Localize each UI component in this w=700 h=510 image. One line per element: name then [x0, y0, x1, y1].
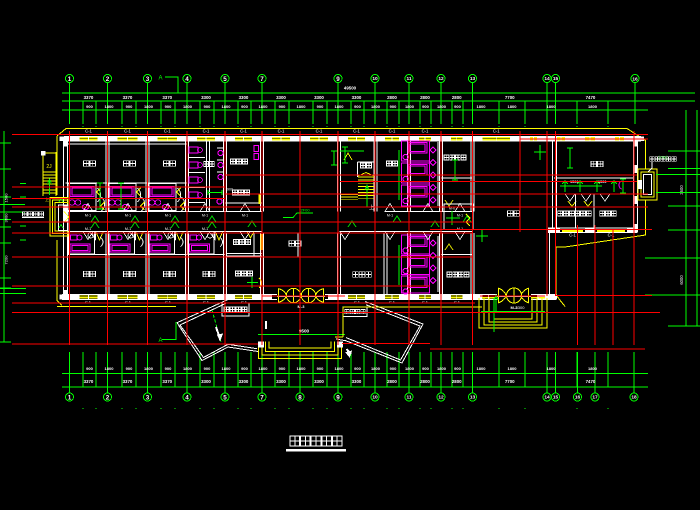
svg-text:900: 900: [422, 366, 429, 371]
svg-text:7470: 7470: [586, 379, 596, 384]
svg-text:900: 900: [317, 366, 324, 371]
svg-text:M-1: M-1: [165, 227, 171, 231]
svg-text:C-1: C-1: [422, 129, 429, 134]
svg-text:1800: 1800: [477, 366, 487, 371]
svg-text:9: 9: [336, 394, 340, 401]
svg-text:M-3: M-3: [298, 304, 306, 309]
svg-text:C-1: C-1: [569, 233, 576, 238]
svg-text:C-1: C-1: [493, 129, 500, 134]
svg-text:12: 12: [438, 395, 444, 401]
svg-text:900: 900: [241, 366, 248, 371]
svg-text:2: 2: [106, 394, 110, 401]
svg-text:2J: 2J: [46, 164, 52, 170]
svg-text:900: 900: [279, 104, 286, 109]
svg-text:M-1: M-1: [202, 214, 208, 218]
svg-text:4: 4: [185, 394, 189, 401]
svg-text:M-1: M-1: [202, 227, 208, 231]
svg-text:3300: 3300: [201, 95, 211, 100]
svg-text:1800: 1800: [144, 104, 154, 109]
svg-text:11: 11: [406, 76, 411, 82]
svg-text:C-1: C-1: [389, 129, 396, 134]
svg-text:900: 900: [317, 104, 324, 109]
svg-text:900: 900: [126, 104, 133, 109]
svg-text:C-1: C-1: [124, 129, 131, 134]
svg-text:M-1: M-1: [125, 227, 131, 231]
svg-text:1800: 1800: [259, 366, 269, 371]
svg-text:900: 900: [390, 366, 397, 371]
svg-text:900: 900: [86, 104, 93, 109]
svg-text:3370: 3370: [162, 95, 172, 100]
svg-text:C-1: C-1: [278, 129, 285, 134]
svg-text:14: 14: [544, 76, 550, 82]
svg-text:1800: 1800: [105, 104, 115, 109]
svg-text:900: 900: [165, 104, 172, 109]
svg-text:1800: 1800: [371, 366, 381, 371]
svg-text:1800: 1800: [183, 104, 193, 109]
svg-text:3300: 3300: [352, 379, 362, 384]
svg-text:900: 900: [227, 188, 233, 192]
svg-text:M-1: M-1: [457, 214, 463, 218]
svg-text:M-1: M-1: [387, 214, 393, 218]
svg-text:1800: 1800: [437, 104, 447, 109]
svg-text:3300: 3300: [239, 379, 249, 384]
svg-text:5: 5: [223, 76, 227, 83]
svg-text:1800: 1800: [508, 104, 518, 109]
svg-text:900: 900: [86, 366, 93, 371]
svg-text:1800: 1800: [588, 366, 598, 371]
svg-text:3600: 3600: [679, 185, 684, 195]
svg-text:900: 900: [204, 366, 211, 371]
svg-text:7: 7: [260, 394, 264, 401]
svg-text:A: A: [158, 338, 162, 344]
svg-text:900: 900: [279, 366, 286, 371]
svg-text:2800: 2800: [387, 95, 397, 100]
svg-text:M-1: M-1: [165, 214, 171, 218]
svg-text:C-1: C-1: [85, 129, 92, 134]
svg-text:1800: 1800: [547, 366, 557, 371]
svg-text:9: 9: [336, 76, 340, 83]
svg-text:2800: 2800: [420, 95, 430, 100]
svg-text:1800: 1800: [222, 104, 232, 109]
svg-text:900: 900: [354, 366, 361, 371]
svg-text:C-1: C-1: [203, 129, 210, 134]
svg-text:15: 15: [553, 76, 559, 82]
svg-text:C-1: C-1: [240, 129, 247, 134]
svg-text:12: 12: [438, 76, 444, 82]
svg-text:3300: 3300: [314, 379, 324, 384]
svg-text:7700: 7700: [505, 95, 515, 100]
svg-text:1800: 1800: [297, 104, 307, 109]
svg-text:2: 2: [106, 76, 110, 83]
svg-text:4: 4: [185, 76, 189, 83]
svg-text:3370: 3370: [123, 379, 133, 384]
svg-text:5: 5: [223, 394, 227, 401]
svg-text:11: 11: [406, 395, 411, 401]
svg-text:2800: 2800: [387, 379, 397, 384]
svg-text:900: 900: [422, 104, 429, 109]
svg-text:3600: 3600: [4, 213, 9, 223]
svg-text:3370: 3370: [84, 95, 94, 100]
svg-text:6000: 6000: [679, 275, 684, 285]
svg-text:A: A: [158, 76, 162, 82]
svg-text:C-1: C-1: [316, 129, 323, 134]
svg-text:900: 900: [165, 366, 172, 371]
svg-text:C-1: C-1: [164, 129, 171, 134]
svg-text:10: 10: [372, 395, 378, 401]
svg-text:2800: 2800: [452, 379, 462, 384]
svg-text:3370: 3370: [162, 379, 172, 384]
svg-text:1800: 1800: [371, 104, 381, 109]
svg-text:16: 16: [632, 76, 638, 82]
svg-text:7200: 7200: [4, 255, 9, 265]
svg-text:15: 15: [553, 395, 559, 401]
svg-text:13: 13: [470, 395, 476, 401]
svg-text:900: 900: [454, 366, 461, 371]
svg-text:1800: 1800: [105, 366, 115, 371]
svg-text:M-1: M-1: [85, 227, 91, 231]
svg-text:3300: 3300: [239, 95, 249, 100]
svg-text:10: 10: [372, 76, 378, 82]
svg-text:1800: 1800: [335, 366, 345, 371]
svg-text:3370: 3370: [84, 379, 94, 384]
svg-text:3: 3: [146, 394, 150, 401]
svg-text:M-1: M-1: [242, 214, 248, 218]
svg-text:2800: 2800: [452, 95, 462, 100]
svg-text:7: 7: [260, 76, 264, 83]
svg-text:1800: 1800: [508, 366, 518, 371]
svg-text:8: 8: [298, 394, 302, 401]
svg-text:M-1: M-1: [125, 214, 131, 218]
svg-text:1800: 1800: [437, 366, 447, 371]
svg-text:7700: 7700: [505, 379, 515, 384]
svg-text:900: 900: [390, 104, 397, 109]
svg-text:1800: 1800: [335, 104, 345, 109]
svg-text:13: 13: [470, 76, 476, 82]
svg-text:1800: 1800: [144, 366, 154, 371]
svg-text:18: 18: [631, 395, 637, 401]
svg-text:49500: 49500: [344, 86, 357, 91]
svg-text:1800: 1800: [405, 366, 415, 371]
svg-text:1800: 1800: [477, 104, 487, 109]
svg-text:C-1: C-1: [608, 233, 615, 238]
svg-text:1800: 1800: [297, 366, 307, 371]
svg-text:16: 16: [575, 395, 581, 401]
svg-text:3300: 3300: [276, 379, 286, 384]
svg-text:3300: 3300: [516, 305, 526, 310]
svg-text:900: 900: [204, 104, 211, 109]
svg-text:1800: 1800: [405, 104, 415, 109]
svg-text:900: 900: [354, 104, 361, 109]
svg-text:3300: 3300: [201, 379, 211, 384]
svg-text:C-1: C-1: [353, 129, 360, 134]
svg-text:1: 1: [68, 76, 72, 83]
svg-text:900: 900: [241, 104, 248, 109]
svg-text:2F00: 2F00: [300, 208, 310, 213]
svg-text:7470: 7470: [586, 95, 596, 100]
svg-text:1800: 1800: [183, 366, 193, 371]
svg-text:1800: 1800: [588, 104, 598, 109]
svg-text:3370: 3370: [123, 95, 133, 100]
svg-text:1: 1: [68, 394, 72, 401]
svg-text:14: 14: [544, 395, 550, 401]
svg-text:900: 900: [454, 104, 461, 109]
svg-text:3300: 3300: [314, 95, 324, 100]
svg-text:M-1: M-1: [85, 214, 91, 218]
svg-text:2800: 2800: [420, 379, 430, 384]
svg-text:3300: 3300: [276, 95, 286, 100]
svg-text:1800: 1800: [547, 104, 557, 109]
svg-text:3: 3: [146, 76, 150, 83]
svg-text:1800: 1800: [259, 104, 269, 109]
svg-text:1500: 1500: [4, 193, 9, 203]
svg-text:17: 17: [592, 395, 598, 401]
svg-text:1800: 1800: [222, 366, 232, 371]
svg-text:3300: 3300: [352, 95, 362, 100]
svg-text:900: 900: [126, 366, 133, 371]
